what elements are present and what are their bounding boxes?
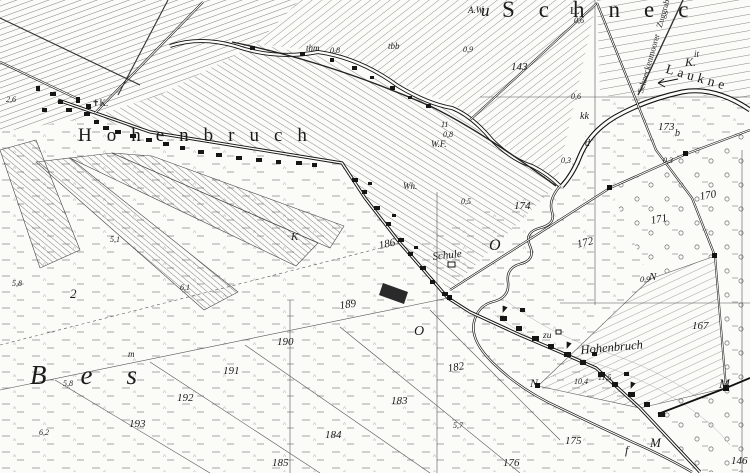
parcel-174: 174 <box>514 201 531 212</box>
parcel-175: 175 <box>565 436 582 447</box>
mark-f: f <box>625 444 628 456</box>
spot-0-6a: 0,6 <box>574 17 584 25</box>
spot-5-8b: 5,8 <box>63 380 73 388</box>
spot-5-8a: 5,8 <box>12 280 22 288</box>
parcel-189: 189 <box>339 299 357 312</box>
parcel-167: 167 <box>692 321 709 332</box>
church-abbrev: ✝K. <box>92 99 108 108</box>
mark-m-small: m <box>128 350 135 359</box>
spot-0-9a: 0,9 <box>463 46 473 54</box>
mark-m-junction: M <box>719 377 730 390</box>
spot-2-6: 2,6 <box>6 96 16 104</box>
parcel-184: 184 <box>325 430 342 441</box>
parcel-143: 143 <box>511 62 528 73</box>
parcel-193: 193 <box>129 419 146 430</box>
place-label-schnec-partial: Schnec <box>502 0 712 21</box>
mark-kk: kk <box>580 112 589 122</box>
mark-b: b <box>675 129 680 139</box>
spot-0-6b: 0,6 <box>571 93 581 101</box>
place-label-bes-partial: Bes <box>30 362 171 389</box>
mark-d: d <box>585 139 590 149</box>
feature-wf: W.F. <box>431 140 447 149</box>
mark-n-cross: N <box>649 272 656 283</box>
feature-tbb: tbb <box>388 42 400 51</box>
parcel-185: 185 <box>272 458 289 469</box>
mark-k-italic: K <box>291 232 298 243</box>
spot-0-3a: 0,3 <box>561 157 571 165</box>
parcel-176: 176 <box>503 458 520 469</box>
spot-11: 11 <box>441 121 448 129</box>
mark-2: 2 <box>70 287 77 300</box>
mark-it: it <box>694 50 699 59</box>
feature-thm: thm <box>306 44 320 53</box>
spot-0-5: 0,5 <box>461 198 471 206</box>
feature-zu: zu <box>543 332 551 342</box>
parcel-191: 191 <box>223 366 240 377</box>
spot-11-5: 11,5 <box>598 374 611 382</box>
spot-0-9b: 0,9 <box>640 276 650 284</box>
parcel-192: 192 <box>177 393 194 404</box>
parcel-183: 183 <box>391 396 408 407</box>
spot-0-8a: 0,8 <box>330 47 340 55</box>
historical-topographic-map[interactable]: Hohenbruch Schnec u Bes Hohenbruch Laukn… <box>0 0 750 473</box>
mark-m-road: M <box>650 436 661 449</box>
place-label-hohenbruch-large: Hohenbruch <box>78 126 322 145</box>
feature-aw: A.W. <box>468 6 485 15</box>
spot-5-7: 5,7 <box>453 422 463 430</box>
mark-n-road: N <box>530 377 538 389</box>
spot-0-3b: 0,3 <box>663 157 673 165</box>
spot-6-1: 6,1 <box>180 284 190 292</box>
spot-5-1: 5,1 <box>110 236 120 244</box>
spot-10-4: 10,4 <box>574 378 588 386</box>
feature-wh: Wh. <box>403 182 417 191</box>
spot-0-8b: 0,8 <box>443 131 453 139</box>
spot-6-2: 6,2 <box>39 429 49 437</box>
parcel-190: 190 <box>277 337 294 348</box>
mark-o-upper: O <box>489 238 501 254</box>
parcel-173: 173 <box>658 122 675 133</box>
mark-o-lower: O <box>414 325 424 339</box>
parcel-146: 146 <box>731 456 748 467</box>
